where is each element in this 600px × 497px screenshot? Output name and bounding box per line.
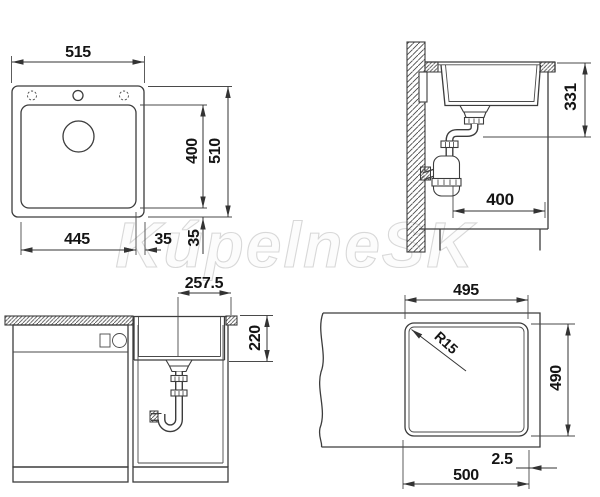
dim-edge-offset: 2.5 — [491, 451, 513, 468]
dim-cutout-depth: 490 — [548, 365, 565, 391]
bowl-section — [441, 65, 541, 106]
dim-bowl-height: 220 — [247, 325, 264, 351]
mounting-rail — [419, 72, 427, 102]
dishwasher-plinth — [13, 467, 128, 482]
dim-clearance-depth: 400 — [486, 190, 513, 209]
countertop-broken-edge — [319, 313, 323, 447]
dishwasher-cabinet — [13, 325, 128, 467]
sink-edge-outline — [409, 327, 524, 432]
faucet-hole-left-icon — [28, 91, 37, 100]
countertop-outline — [322, 313, 541, 447]
dim-rim-side: 35 — [154, 231, 172, 248]
dishwasher-display-icon — [100, 334, 110, 347]
drain-icon — [63, 121, 94, 152]
sink-cabinet-plinth — [133, 467, 228, 482]
dim-cutout-width: 495 — [453, 282, 479, 299]
faucet-hole-right-icon — [120, 91, 129, 100]
technical-drawing-canvas: KúpelneSK 515 400 510 445 35 35 — [0, 0, 600, 497]
dim-bowl-width: 445 — [64, 231, 90, 248]
dishwasher-knob-icon — [113, 334, 127, 348]
front-view: 257.5 220 — [5, 275, 273, 482]
dim-rim-front: 35 — [186, 229, 203, 247]
dim-drain-height: 331 — [561, 83, 580, 110]
dim-min-width: 500 — [453, 467, 479, 484]
dim-corner-radius: R15 — [431, 328, 461, 357]
dim-drain-offset: 257.5 — [185, 275, 224, 292]
sink-installation-drawing: KúpelneSK 515 400 510 445 35 35 — [0, 0, 600, 497]
wall-outlet-nut — [421, 167, 431, 180]
cutout-view: R15 495 490 2.5 500 — [319, 282, 575, 489]
cutout-outline — [405, 323, 528, 436]
trap-cup — [434, 156, 460, 196]
faucet-hole-center-icon — [73, 91, 83, 101]
dim-overall-width: 515 — [65, 44, 91, 61]
dim-bowl-depth: 400 — [184, 138, 201, 164]
dim-overall-depth: 510 — [207, 138, 224, 164]
